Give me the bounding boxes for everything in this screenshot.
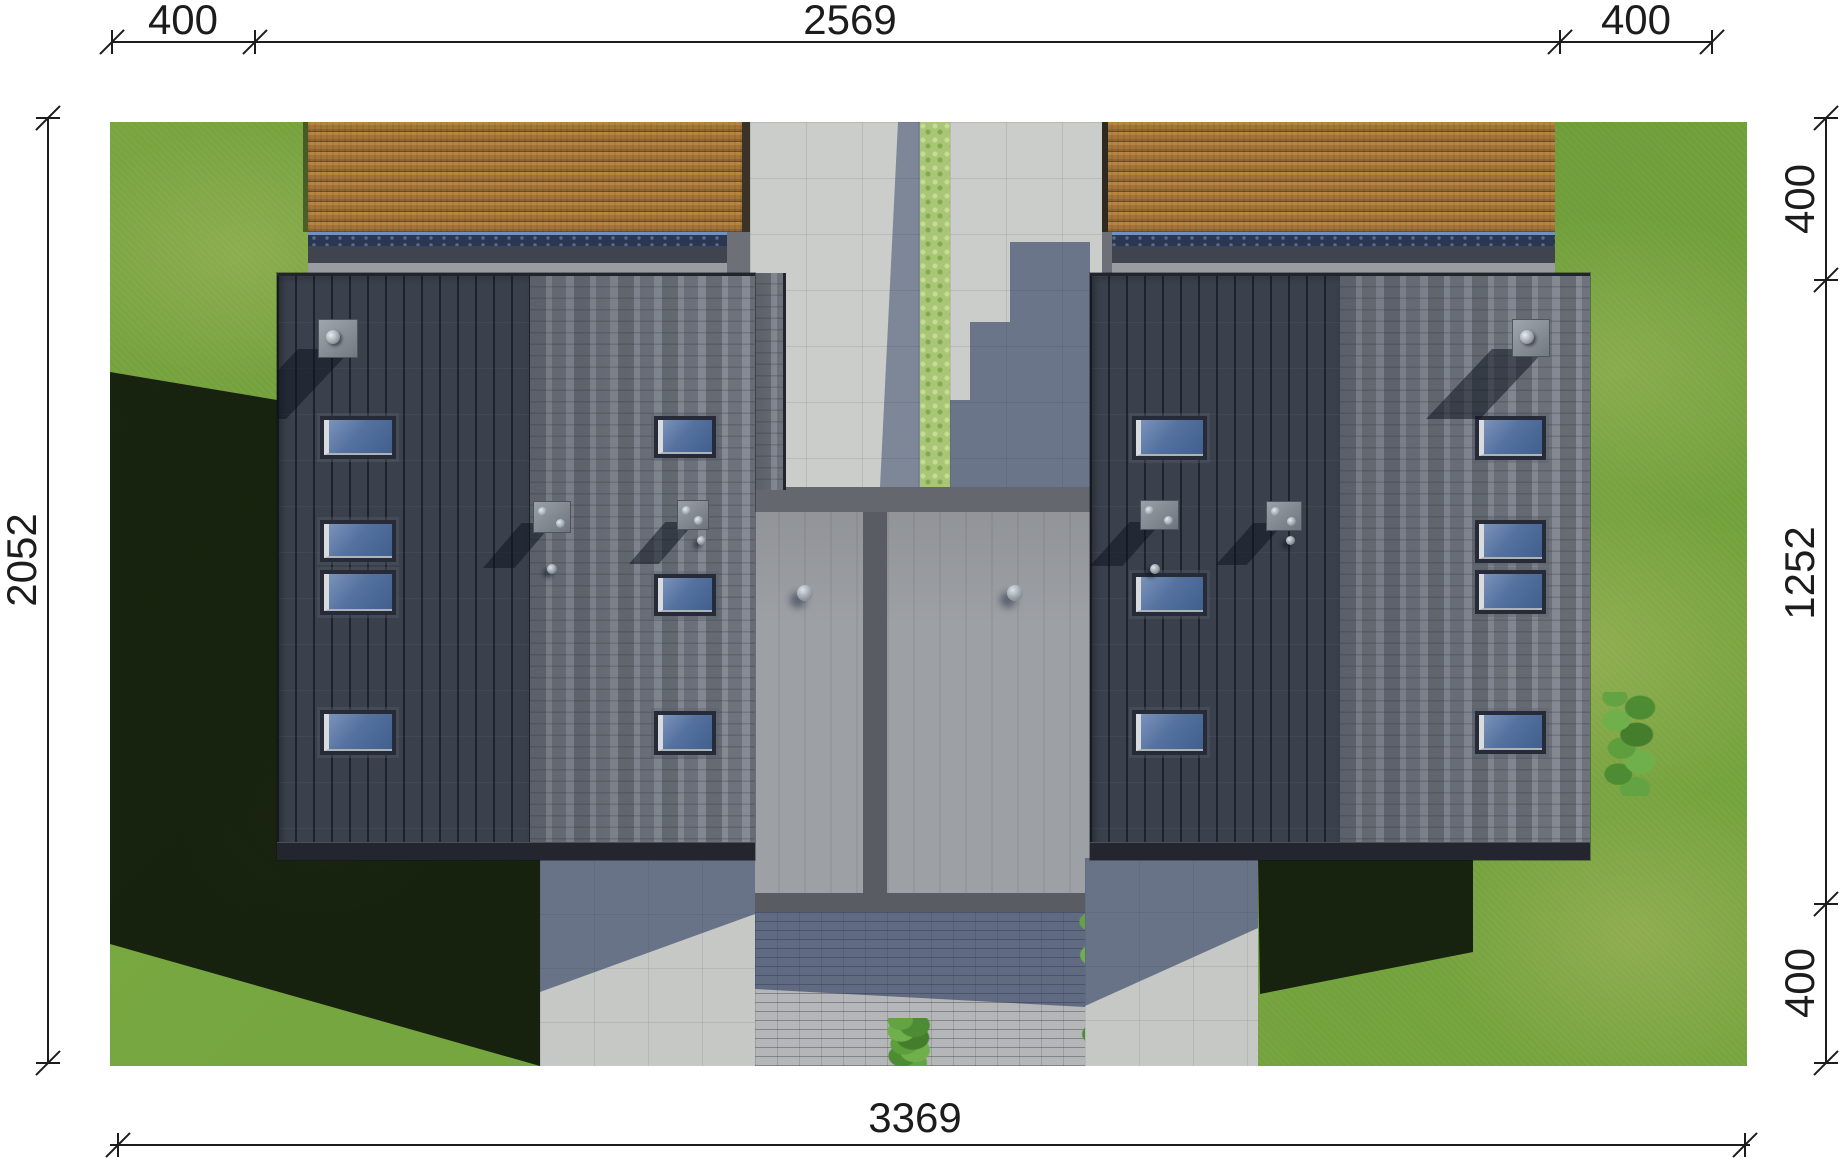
roof-extension-left	[755, 273, 786, 490]
skylight	[320, 710, 396, 755]
roof-divider	[863, 512, 887, 893]
dimension-tick	[36, 117, 60, 119]
dimension-label-top-left: 400	[103, 0, 263, 40]
skylight	[320, 570, 396, 615]
roof-plan-page: 400 2569 400 2052 400 1252 400 3369	[0, 0, 1840, 1168]
vent-pipe	[697, 536, 706, 545]
wood-deck-right	[1105, 122, 1555, 232]
roof-standing-seam	[1090, 276, 1340, 860]
vent-pipe	[1286, 536, 1295, 545]
glazing-band-right	[1108, 232, 1555, 273]
skylight	[1475, 520, 1546, 563]
roof-tiles	[1340, 276, 1590, 860]
dimension-label-right-bottom: 400	[1780, 903, 1820, 1063]
skylight	[1132, 710, 1207, 755]
dimension-tick	[36, 1062, 60, 1064]
dimension-tick	[1814, 279, 1838, 281]
hedge-row	[920, 122, 950, 487]
chimney	[1512, 319, 1550, 357]
vent-dome	[1007, 585, 1023, 601]
skylight	[1475, 570, 1546, 614]
skylight	[654, 574, 716, 616]
vent-dome	[797, 585, 813, 601]
skylight	[654, 711, 716, 755]
skylight	[320, 416, 396, 459]
roof-fascia	[1090, 842, 1590, 860]
vent-box	[1266, 501, 1302, 531]
shrub-center	[885, 1018, 933, 1066]
roof-tiles	[530, 276, 755, 860]
vent-box	[1140, 500, 1179, 530]
flat-roof-panel-left	[752, 512, 863, 893]
dimension-tick	[1744, 1133, 1746, 1157]
roof-plan-render	[110, 122, 1747, 1066]
dimension-line-left	[47, 118, 49, 1063]
dimension-line-top	[112, 41, 1712, 43]
parapet-band-bottom	[752, 893, 1090, 912]
dimension-label-left: 2052	[2, 480, 42, 640]
deck-edge-dark	[742, 122, 750, 232]
house-right-roof	[1090, 273, 1590, 860]
vent-pipe	[1150, 564, 1160, 574]
dimension-line-right	[1825, 118, 1827, 1063]
deck-edge-shadow	[1102, 122, 1108, 232]
skylight	[1475, 711, 1546, 754]
skylight	[1132, 573, 1207, 616]
chimney	[318, 319, 358, 358]
dimension-label-top-right: 400	[1556, 0, 1716, 40]
dimension-label-right-top: 400	[1780, 119, 1820, 279]
dimension-label-right-middle: 1252	[1780, 493, 1820, 653]
vent-box	[533, 501, 571, 533]
house-left-roof	[277, 273, 755, 860]
dimension-label-top-middle: 2569	[750, 0, 950, 40]
roof-fascia	[277, 842, 755, 860]
deck-edge-shadow	[303, 122, 308, 232]
glazing-band-left	[308, 232, 748, 273]
wood-deck-left	[308, 122, 747, 232]
shrub-cluster-east	[1588, 692, 1672, 796]
skylight	[654, 416, 716, 458]
skylight	[320, 520, 396, 562]
vent-pipe	[547, 564, 557, 574]
skylight	[1132, 416, 1207, 460]
skylight	[1475, 416, 1546, 460]
flat-roof-panel-right	[887, 512, 1090, 893]
dimension-label-bottom: 3369	[815, 1098, 1015, 1138]
parapet-band-top	[748, 487, 1090, 512]
vent-box	[677, 500, 709, 530]
dimension-line-bottom	[110, 1144, 1750, 1146]
dimension-tick	[117, 1133, 119, 1157]
